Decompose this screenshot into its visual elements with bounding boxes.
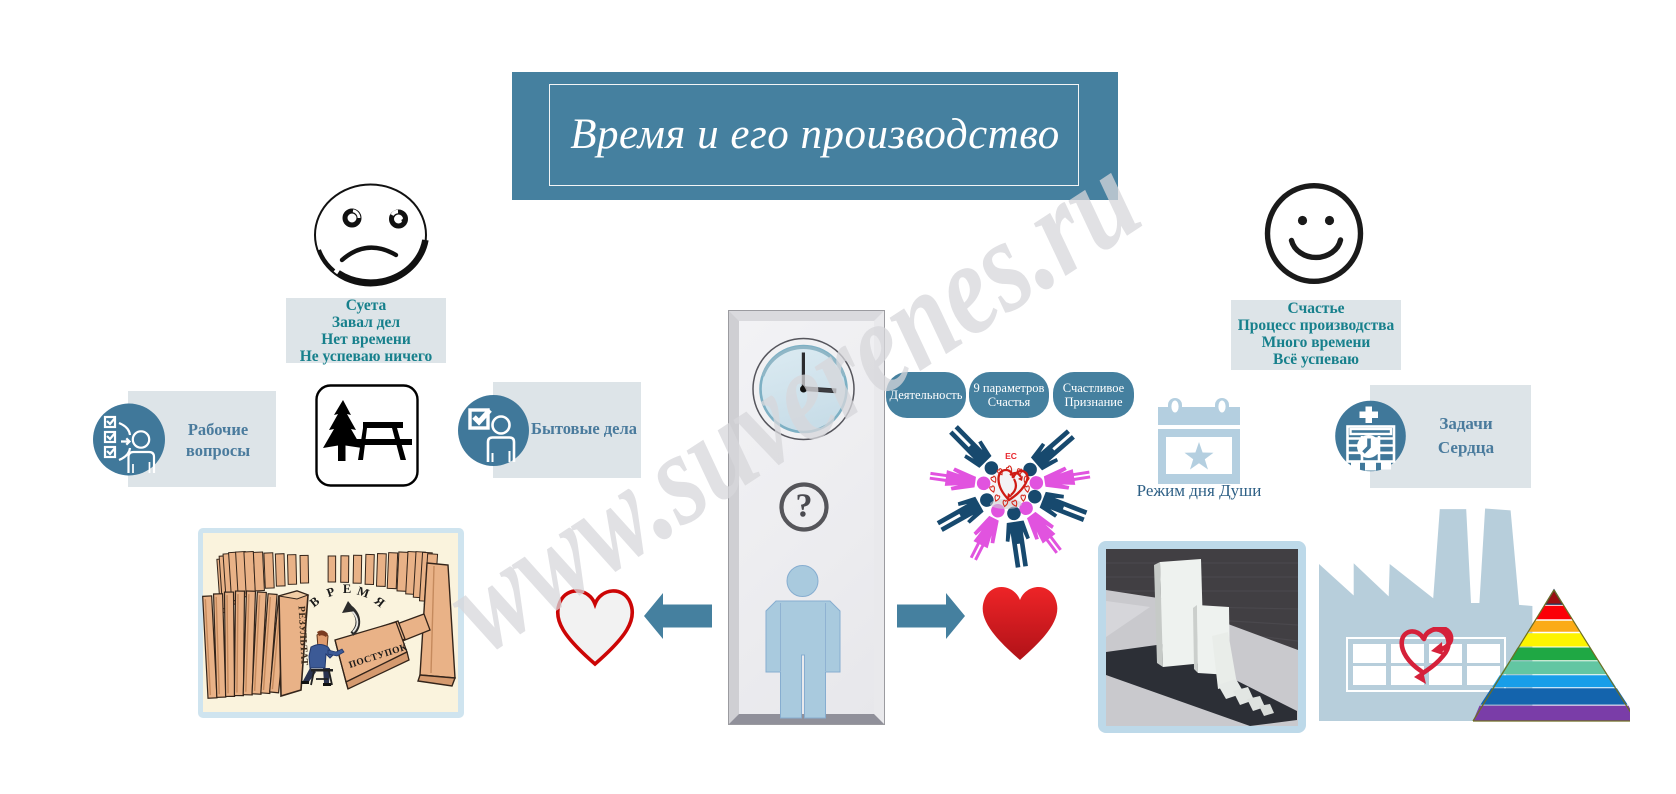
svg-text:ЕС: ЕС	[1005, 451, 1017, 461]
